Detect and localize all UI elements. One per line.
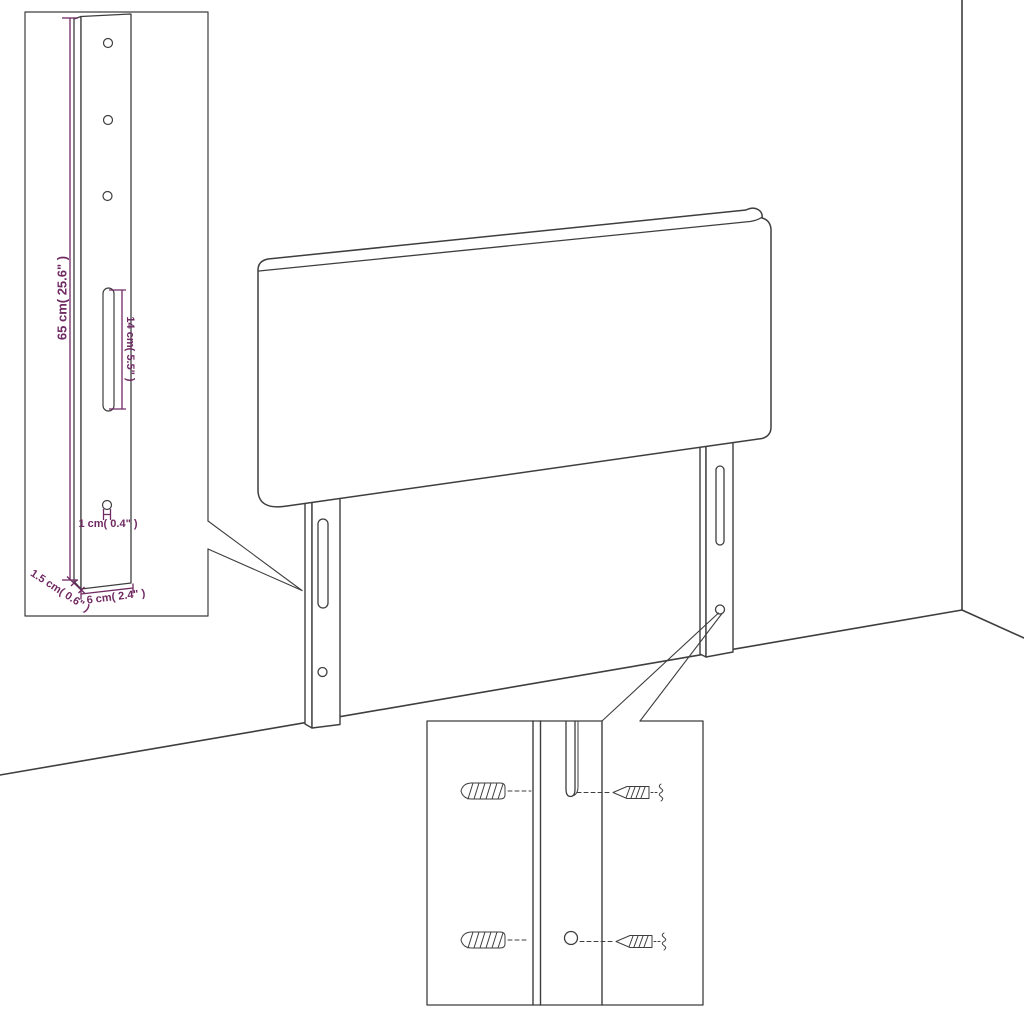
dimension-label-bracket-height: 65 cm( 25.6" ) [55,256,70,340]
dimension-label-hole-diameter: 1 cm( 0.4" ) [78,518,137,530]
right-leg [700,439,733,657]
line-art [0,0,1024,1024]
headboard-outline [258,208,771,507]
wall-plug-top [461,783,505,799]
floor-line-right [962,610,1024,638]
inset-box-border [427,721,703,1005]
inset-leg-slot [566,721,575,797]
left-leg [305,495,340,728]
floor-line-left [0,610,962,775]
callout-line [640,614,722,722]
left-leg-side-face [305,497,312,728]
dimension-label-slot-length: 14 cm( 5.5" ) [124,316,136,381]
headboard-panel [258,208,771,507]
alignment-dashes [508,791,613,942]
headboard-assembly-diagram: 65 cm( 25.6" ) 14 cm( 5.5" ) 1 cm( 0.4" … [0,0,1024,1024]
wall-plug-bottom [461,932,505,948]
screw-bottom [616,933,666,950]
hardware-detail-inset [427,721,703,1005]
callout-wedge-left [208,521,302,591]
bracket-side-face [74,17,81,590]
bracket-front-face [81,14,131,589]
inset-leg-section [533,721,602,1005]
callout-line [602,613,719,721]
screw-top [613,784,663,801]
inset-leg-hole [565,932,578,945]
right-leg-front-face [706,439,733,657]
left-leg-front-face [312,495,340,728]
